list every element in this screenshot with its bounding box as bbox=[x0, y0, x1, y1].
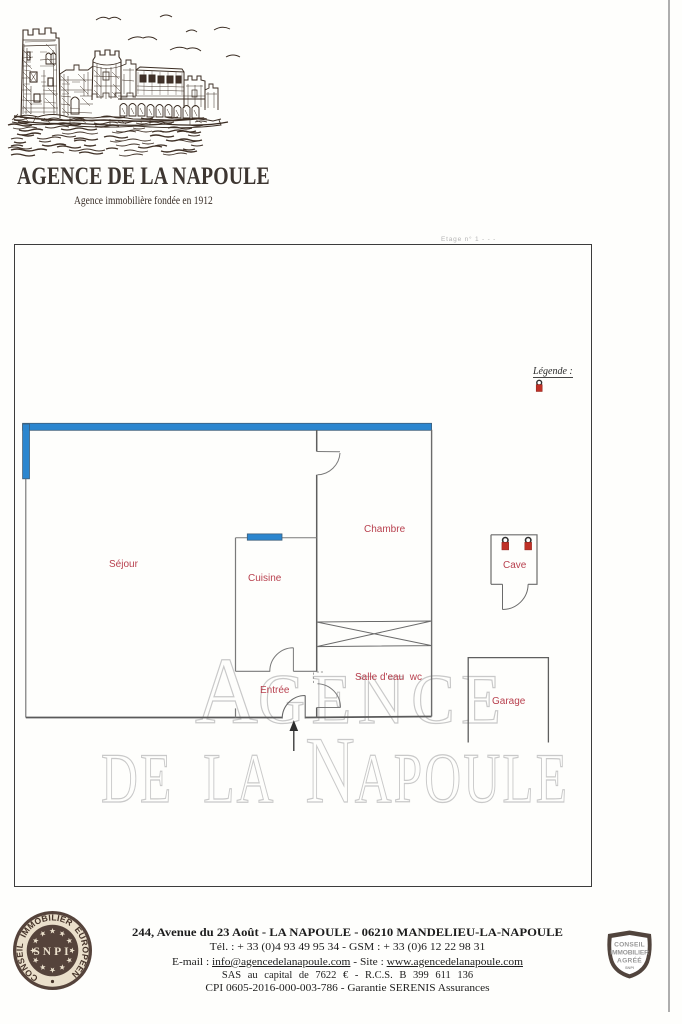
svg-text:SNPI: SNPI bbox=[33, 946, 71, 958]
svg-text:IMMOBILIER: IMMOBILIER bbox=[610, 950, 649, 957]
svg-text:CONSEIL: CONSEIL bbox=[614, 942, 645, 949]
svg-text:AGRÉÉ: AGRÉÉ bbox=[617, 956, 642, 965]
svg-text:SNPI: SNPI bbox=[625, 965, 634, 970]
